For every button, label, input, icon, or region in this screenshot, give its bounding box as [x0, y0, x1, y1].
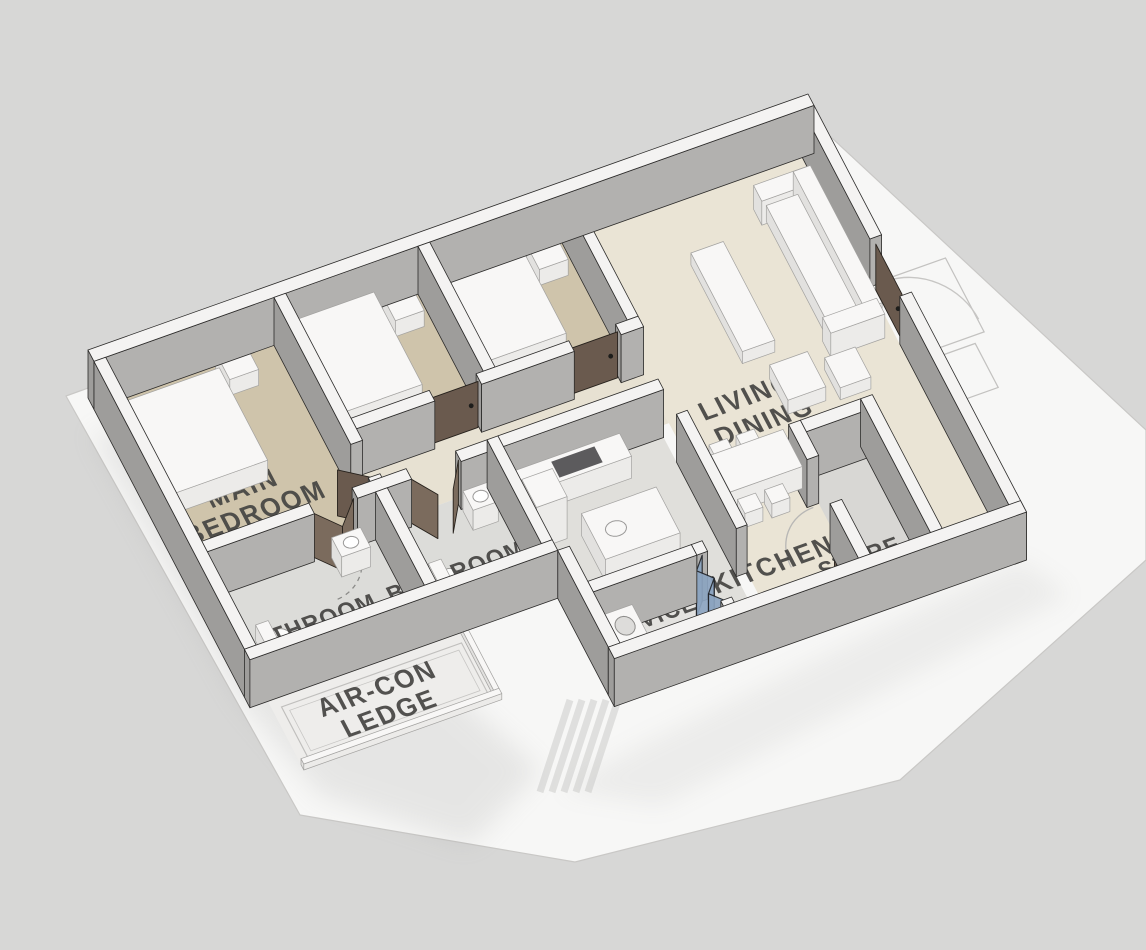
wall [616, 316, 644, 383]
floor-plan-render: MAIN BEDROOM BATHROOM BATHROOM LIVING/ D… [0, 0, 1146, 950]
